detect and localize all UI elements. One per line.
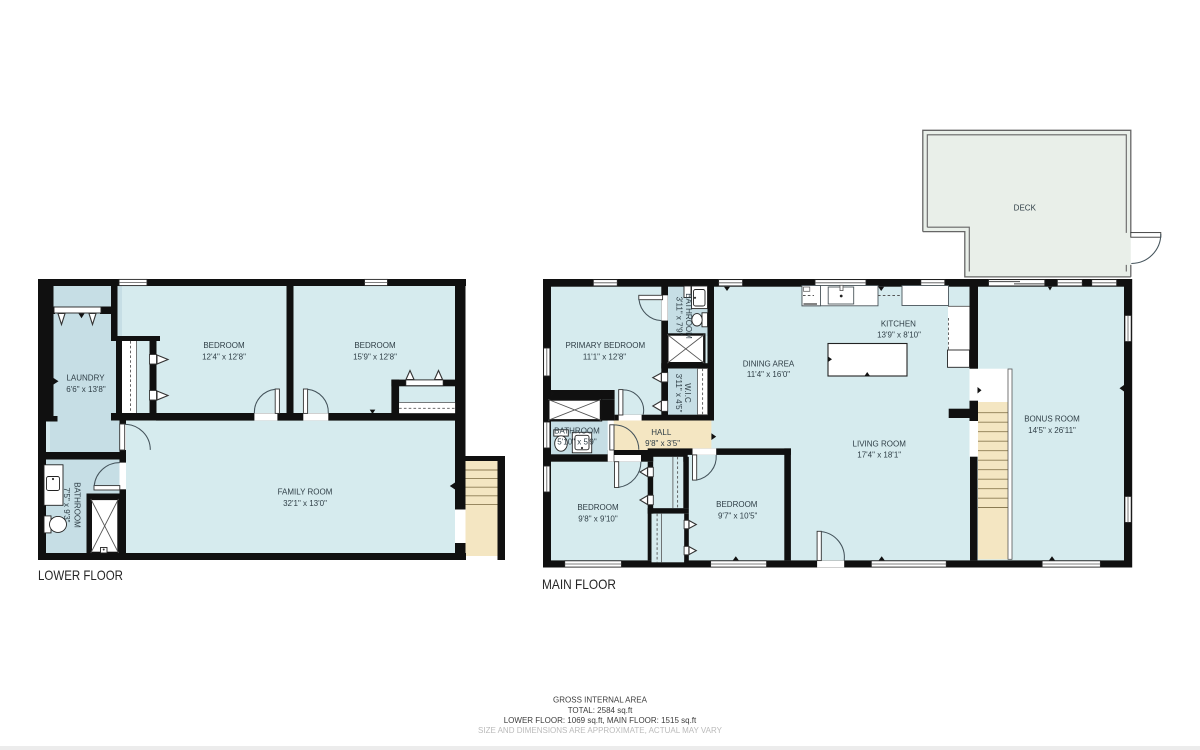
svg-text:9'8" x 9'10": 9'8" x 9'10" xyxy=(578,515,618,524)
svg-text:LAUNDRY: LAUNDRY xyxy=(66,374,105,383)
svg-text:13'9" x 8'10": 13'9" x 8'10" xyxy=(877,331,921,340)
svg-text:5'10" x 5'9": 5'10" x 5'9" xyxy=(557,438,597,447)
svg-text:FAMILY ROOM: FAMILY ROOM xyxy=(278,488,333,497)
svg-text:BATHROOM: BATHROOM xyxy=(684,293,693,339)
svg-text:PRIMARY BEDROOM: PRIMARY BEDROOM xyxy=(565,341,645,350)
svg-text:15'9" x 12'8": 15'9" x 12'8" xyxy=(353,353,397,362)
svg-text:BONUS ROOM: BONUS ROOM xyxy=(1024,415,1080,424)
svg-text:DECK: DECK xyxy=(1014,204,1037,213)
svg-text:3'11" x 7'9": 3'11" x 7'9" xyxy=(675,297,684,336)
svg-text:7'5" x 9'3": 7'5" x 9'3" xyxy=(62,488,71,523)
svg-text:17'4" x 18'1": 17'4" x 18'1" xyxy=(857,451,901,460)
svg-text:LOWER FLOOR: 1069 sq.ft, MAIN: LOWER FLOOR: 1069 sq.ft, MAIN FLOOR: 151… xyxy=(504,716,697,725)
svg-text:SIZE AND DIMENSIONS ARE APPROX: SIZE AND DIMENSIONS ARE APPROXIMATE, ACT… xyxy=(478,726,723,735)
svg-text:DINING AREA: DINING AREA xyxy=(743,360,795,369)
svg-text:KITCHEN: KITCHEN xyxy=(881,320,916,329)
svg-text:BATHROOM: BATHROOM xyxy=(554,427,600,436)
svg-text:GROSS INTERNAL AREA: GROSS INTERNAL AREA xyxy=(553,696,648,705)
svg-text:BEDROOM: BEDROOM xyxy=(354,341,396,350)
svg-text:HALL: HALL xyxy=(651,428,672,437)
svg-text:BEDROOM: BEDROOM xyxy=(577,503,619,512)
svg-text:32'1" x 13'0": 32'1" x 13'0" xyxy=(283,499,327,508)
svg-text:BEDROOM: BEDROOM xyxy=(203,341,245,350)
svg-text:W.I.C: W.I.C xyxy=(683,383,692,403)
svg-text:11'4" x 16'0": 11'4" x 16'0" xyxy=(747,370,790,379)
svg-text:TOTAL: 2584 sq.ft: TOTAL: 2584 sq.ft xyxy=(568,706,633,715)
svg-text:3'11" x 4'5": 3'11" x 4'5" xyxy=(674,374,683,413)
svg-text:6'6" x 13'8": 6'6" x 13'8" xyxy=(66,385,106,394)
svg-text:14'5" x 26'11": 14'5" x 26'11" xyxy=(1028,426,1076,435)
svg-text:LOWER FLOOR: LOWER FLOOR xyxy=(38,568,123,583)
svg-text:BEDROOM: BEDROOM xyxy=(716,500,758,509)
svg-text:11'1" x 12'8": 11'1" x 12'8" xyxy=(583,353,626,362)
svg-text:BATHROOM: BATHROOM xyxy=(73,482,82,528)
svg-text:12'4" x 12'8": 12'4" x 12'8" xyxy=(202,353,246,362)
svg-text:MAIN FLOOR: MAIN FLOOR xyxy=(542,577,616,592)
svg-text:LIVING ROOM: LIVING ROOM xyxy=(853,440,907,449)
svg-text:9'8" x 3'5": 9'8" x 3'5" xyxy=(645,439,680,448)
svg-text:9'7" x 10'5": 9'7" x 10'5" xyxy=(718,512,758,521)
